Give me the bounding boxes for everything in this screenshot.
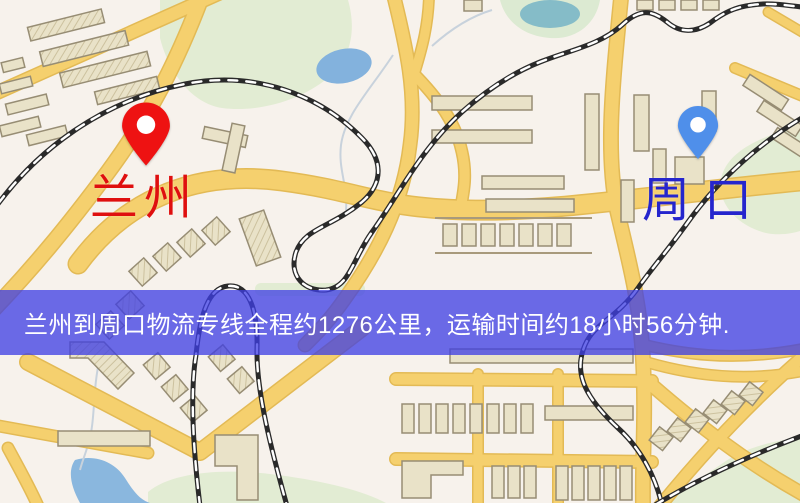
map-canvas[interactable] xyxy=(0,0,800,503)
map-screenshot: 兰州 周口 兰州到周口物流专线全程约1276公里，运输时间约18小时56分钟. xyxy=(0,0,800,503)
origin-pin-hole xyxy=(137,116,155,134)
origin-label: 兰州 xyxy=(90,174,198,224)
route-banner-text: 兰州到周口物流专线全程约1276公里，运输时间约18小时56分钟. xyxy=(24,305,730,340)
destination-pin-hole xyxy=(690,117,706,133)
destination-label: 周口 xyxy=(642,176,766,226)
route-banner: 兰州到周口物流专线全程约1276公里，运输时间约18小时56分钟. xyxy=(0,290,800,355)
destination-pin-icon[interactable] xyxy=(677,102,719,163)
origin-pin-icon[interactable] xyxy=(121,100,171,168)
